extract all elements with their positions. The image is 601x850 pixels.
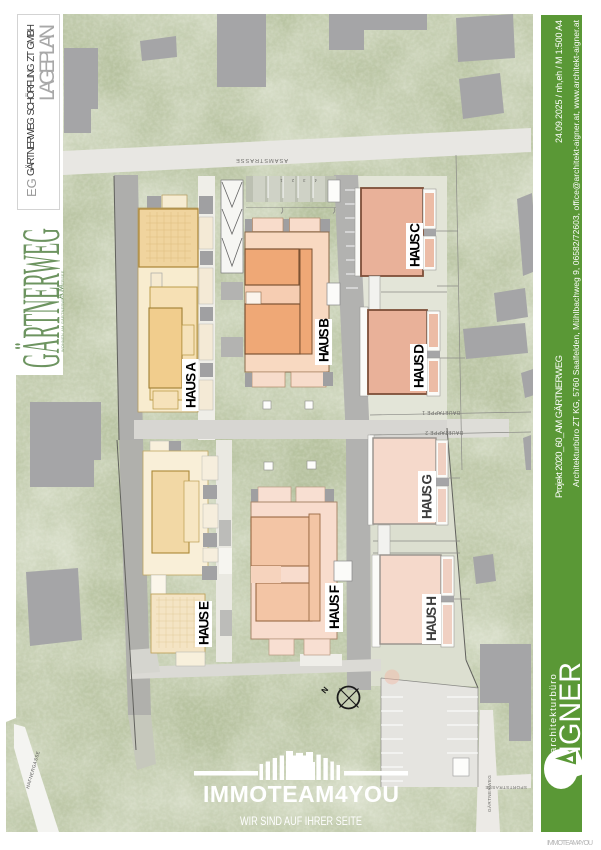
svg-text:architekturbüro: architekturbüro	[548, 673, 559, 753]
svg-text:WIR SIND AUF IHRER SEITE: WIR SIND AUF IHRER SEITE	[240, 814, 362, 828]
svg-text:4321: 4321	[271, 178, 317, 183]
svg-text:HAUS A: HAUS A	[184, 362, 199, 408]
svg-text:HAUS C: HAUS C	[408, 223, 423, 267]
svg-text:WOHNEN AM GÄRTNERWEG ATTERSEE: WOHNEN AM GÄRTNERWEG ATTERSEE	[61, 270, 65, 352]
svg-text:Architekturbüro ZT KG, 5760 Sa: Architekturbüro ZT KG, 5760 Saalfelden, …	[571, 19, 581, 487]
svg-text:HAUS G: HAUS G	[420, 474, 435, 519]
svg-text:IMMOTEAM4YOU: IMMOTEAM4YOU	[203, 781, 399, 807]
svg-text:24.09.2025 / nh,eh / M 1:500 A: 24.09.2025 / nh,eh / M 1:500 A4	[554, 20, 564, 143]
svg-text:IMMOTEAM4YOU: IMMOTEAM4YOU	[547, 840, 593, 847]
svg-text:HAUS H: HAUS H	[424, 596, 439, 641]
svg-text:HAUS B: HAUS B	[317, 318, 332, 362]
svg-text:BAUETAPPE 1: BAUETAPPE 1	[422, 409, 460, 415]
svg-text:HAUS F: HAUS F	[327, 585, 342, 629]
svg-text:SPORTSTRASSE: SPORTSTRASSE	[485, 785, 527, 790]
svg-text:ASAMSTRASSE: ASAMSTRASSE	[235, 157, 288, 163]
svg-text:HAUS E: HAUS E	[197, 601, 212, 645]
svg-text:GÄRTNERWEG: GÄRTNERWEG	[486, 775, 492, 812]
svg-text:LAGEPLAN: LAGEPLAN	[36, 24, 59, 101]
svg-text:EG: EG	[24, 178, 39, 197]
svg-text:BAUETAPPE 2: BAUETAPPE 2	[425, 429, 463, 435]
svg-text:HAUS D: HAUS D	[412, 344, 427, 388]
svg-text:Projekt 2020_60_AM GÄRTNERWEG: Projekt 2020_60_AM GÄRTNERWEG	[554, 355, 565, 498]
